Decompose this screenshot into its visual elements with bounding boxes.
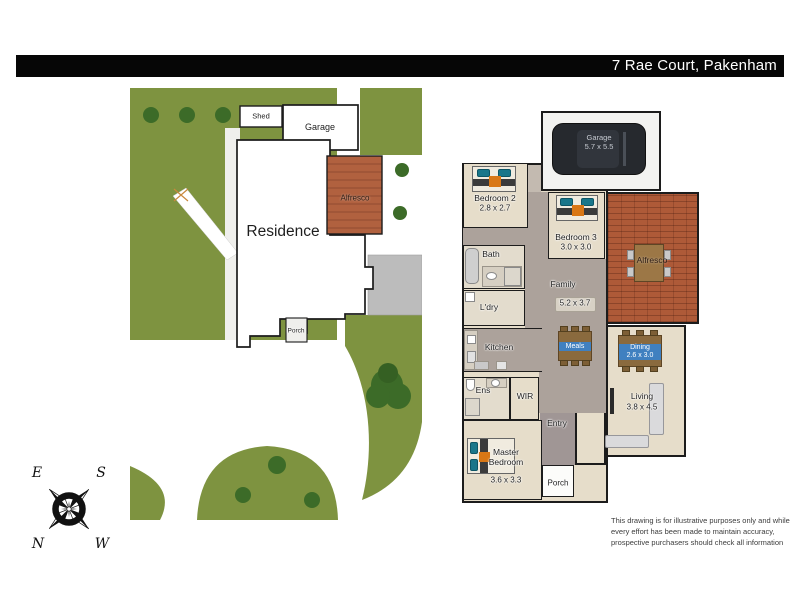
site-alfresco-label: Alfresco bbox=[341, 194, 370, 203]
master-label: Master Bedroom bbox=[482, 448, 530, 468]
porch-label: Porch bbox=[548, 479, 569, 488]
property-address: 7 Rae Court, Pakenham bbox=[612, 55, 777, 77]
sink-icon bbox=[486, 272, 497, 280]
compass-rose-icon: E S N W bbox=[24, 456, 116, 552]
grass-bottom-left-wedge bbox=[130, 466, 165, 520]
ensuite-label: Ens bbox=[476, 385, 491, 395]
garage-label-group: Garage 5.7 x 5.5 bbox=[585, 133, 614, 151]
entry-label: Entry bbox=[547, 418, 567, 428]
disclaimer-line: This drawing is for illustrative purpose… bbox=[611, 516, 796, 527]
compass-glyph bbox=[46, 486, 91, 531]
hall-floor bbox=[463, 228, 525, 245]
tree-icon bbox=[215, 107, 231, 123]
bed-icon bbox=[556, 195, 598, 221]
title-bar: 7 Rae Court, Pakenham bbox=[16, 55, 784, 77]
dining-label: Dining bbox=[619, 344, 661, 352]
tv-icon bbox=[610, 388, 614, 414]
compass-n: N bbox=[31, 536, 45, 552]
compass: E S N W bbox=[24, 456, 116, 552]
bed-icon bbox=[472, 166, 516, 192]
grass-right-bottom bbox=[345, 315, 422, 500]
site-garage-label: Garage bbox=[305, 122, 335, 132]
bedroom3-label: Bedroom 3 bbox=[555, 232, 597, 242]
family-label: Family bbox=[550, 279, 575, 289]
shower-icon bbox=[465, 398, 480, 416]
site-plan-graphic bbox=[130, 88, 422, 520]
toilet-icon bbox=[466, 379, 475, 391]
bush-icon bbox=[304, 492, 320, 508]
site-plan: Shed Garage Residence Alfresco Porch bbox=[130, 88, 422, 520]
bedroom2-dims: 2.8 x 2.7 bbox=[480, 204, 511, 213]
garage-label: Garage bbox=[585, 133, 614, 142]
disclaimer-line: prospective purchasers should check all … bbox=[611, 538, 796, 549]
laundry-label: L'dry bbox=[480, 302, 498, 312]
bedroom2-label: Bedroom 2 bbox=[474, 193, 516, 203]
bush-icon bbox=[235, 487, 251, 503]
dining-label-group: Dining 2.6 x 3.0 bbox=[619, 344, 661, 360]
disclaimer: This drawing is for illustrative purpose… bbox=[611, 516, 796, 549]
tree-icon bbox=[143, 107, 159, 123]
bathtub-icon bbox=[465, 248, 479, 284]
dining-table-icon: Dining 2.6 x 3.0 bbox=[618, 335, 662, 367]
bush-icon bbox=[268, 456, 286, 474]
sofa-icon bbox=[605, 435, 649, 448]
disclaimer-line: every effort has been made to maintain a… bbox=[611, 527, 796, 538]
bedroom3-dims: 3.0 x 3.0 bbox=[561, 243, 592, 252]
site-shed-label: Shed bbox=[252, 112, 270, 121]
grass-island bbox=[197, 446, 338, 520]
tree-icon bbox=[179, 107, 195, 123]
meals-table-icon: Meals bbox=[558, 331, 592, 361]
site-residence-label: Residence bbox=[246, 223, 319, 241]
bush-icon bbox=[393, 206, 407, 220]
grass-right-top bbox=[360, 88, 422, 155]
concrete-pad bbox=[368, 255, 422, 315]
master-dims: 3.6 x 3.3 bbox=[491, 476, 522, 485]
stove-icon bbox=[474, 361, 489, 370]
laundry-trough-icon bbox=[465, 292, 475, 302]
hall-floor bbox=[525, 192, 548, 259]
floor-plan: Meals Dining 2.6 x 3.0 bbox=[458, 108, 704, 504]
wir-label: WIR bbox=[517, 391, 534, 401]
family-floor-lower bbox=[539, 372, 606, 413]
living-dims: 3.8 x 4.5 bbox=[627, 403, 658, 412]
alfresco-label: Alfresco bbox=[637, 255, 668, 265]
living-label: Living bbox=[631, 391, 653, 401]
meals-label: Meals bbox=[559, 342, 591, 351]
compass-center bbox=[67, 507, 71, 511]
bath-label: Bath bbox=[482, 249, 500, 259]
compass-w: W bbox=[95, 536, 111, 552]
family-dims: 5.2 x 3.7 bbox=[560, 299, 591, 308]
site-porch-label: Porch bbox=[288, 328, 305, 335]
bush-icon bbox=[395, 163, 409, 177]
floorplan-page: 7 Rae Court, Pakenham bbox=[0, 0, 800, 600]
sink-icon bbox=[491, 379, 500, 387]
fridge-icon bbox=[496, 361, 507, 370]
dining-dims: 2.6 x 3.0 bbox=[619, 352, 661, 360]
compass-s: S bbox=[96, 465, 106, 481]
shower-icon bbox=[504, 267, 521, 286]
car-windshield bbox=[623, 132, 626, 166]
garage-dims: 5.7 x 5.5 bbox=[585, 142, 614, 151]
kitchen-label: Kitchen bbox=[485, 342, 513, 352]
compass-e: E bbox=[31, 465, 42, 481]
